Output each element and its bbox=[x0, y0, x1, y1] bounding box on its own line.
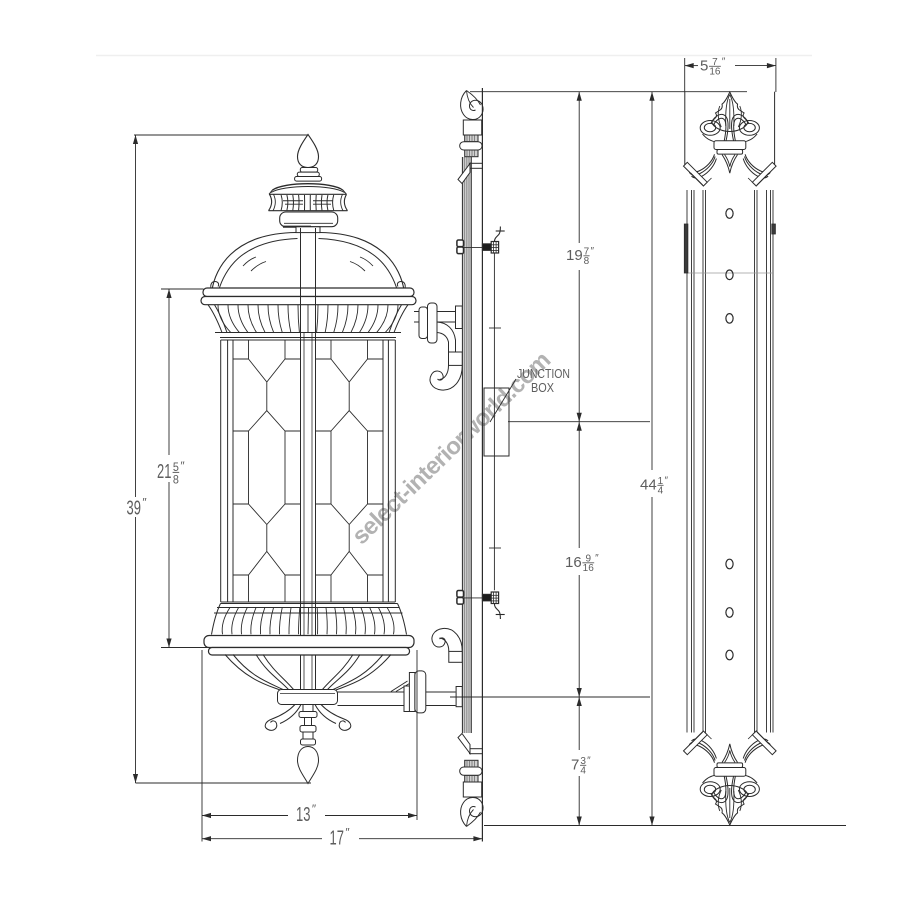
svg-text:″: ″ bbox=[664, 476, 668, 487]
svg-text:″: ″ bbox=[345, 826, 350, 840]
svg-text:7: 7 bbox=[571, 757, 579, 774]
svg-text:44: 44 bbox=[640, 477, 657, 494]
svg-text:″: ″ bbox=[722, 57, 726, 68]
svg-text:″: ″ bbox=[590, 246, 594, 257]
svg-text:5: 5 bbox=[700, 58, 708, 75]
svg-text:21: 21 bbox=[157, 461, 171, 483]
svg-text:16: 16 bbox=[709, 67, 721, 78]
svg-text:16: 16 bbox=[583, 563, 595, 574]
svg-text:39: 39 bbox=[127, 498, 141, 520]
svg-text:″: ″ bbox=[312, 802, 317, 816]
svg-text:″: ″ bbox=[180, 459, 185, 473]
svg-text:16: 16 bbox=[565, 554, 582, 571]
svg-text:″: ″ bbox=[142, 496, 147, 510]
svg-text:19: 19 bbox=[566, 247, 583, 264]
svg-text:13: 13 bbox=[296, 804, 310, 826]
svg-text:17: 17 bbox=[330, 828, 344, 850]
svg-text:″: ″ bbox=[595, 553, 599, 564]
svg-text:″: ″ bbox=[587, 756, 591, 767]
svg-text:8: 8 bbox=[584, 256, 590, 267]
svg-text:8: 8 bbox=[173, 475, 179, 487]
svg-text:4: 4 bbox=[658, 486, 664, 497]
svg-text:BOX: BOX bbox=[531, 380, 554, 395]
svg-text:4: 4 bbox=[580, 766, 586, 777]
svg-text:JUNCTION: JUNCTION bbox=[517, 366, 570, 381]
